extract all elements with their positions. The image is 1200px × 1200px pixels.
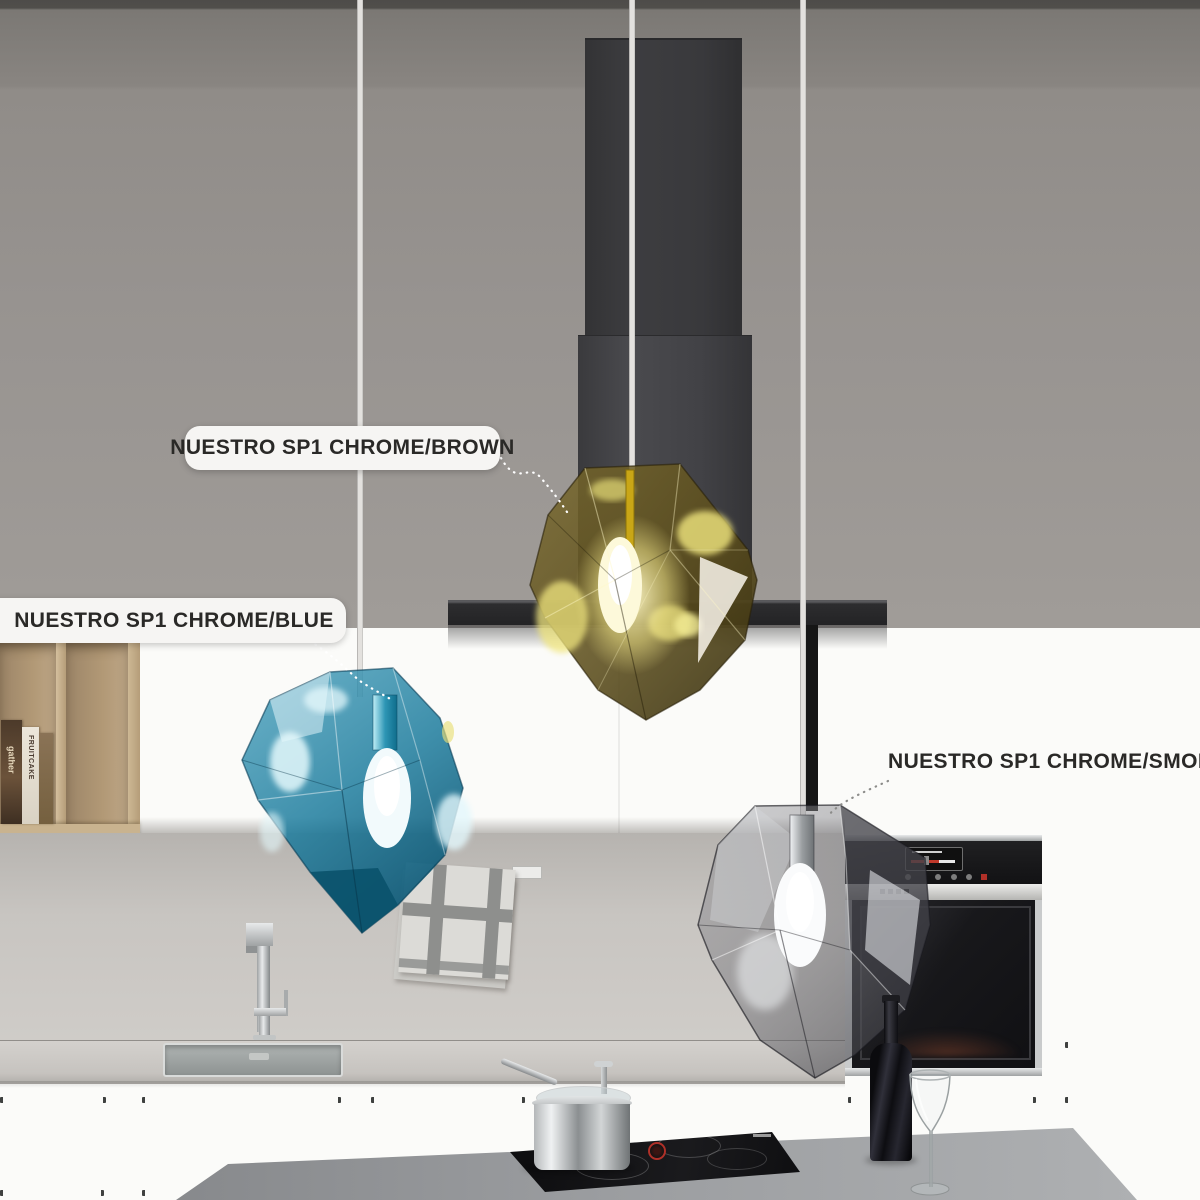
- cooktop-ring: [707, 1148, 767, 1170]
- book-gather-title: gather: [7, 746, 17, 774]
- pendant-blue-stem: [373, 695, 397, 750]
- drawer-handle[interactable]: [0, 1190, 104, 1196]
- pot: [495, 1058, 640, 1178]
- bulb-hotspot: [786, 872, 814, 932]
- bulb-hotspot: [374, 756, 400, 816]
- pendant-brown-stem: [626, 470, 634, 548]
- faucet-base: [259, 1016, 270, 1036]
- shelf-divider: [56, 642, 66, 824]
- book-gather: gather: [1, 720, 22, 824]
- oven-button-stop[interactable]: [981, 874, 987, 880]
- product-tag-blue-text: NUESTRO SP1 CHROME/BLUE: [14, 609, 334, 633]
- wine-glass-bowl: [910, 1075, 950, 1187]
- pendant-brown: [520, 455, 765, 745]
- glass-glow-spot: [677, 511, 733, 555]
- glass-glow-spot: [270, 732, 310, 792]
- faucet-tee: [254, 1008, 286, 1016]
- cooktop-controls[interactable]: [753, 1134, 771, 1137]
- product-tag-smoke-text: NUESTRO SP1 CHROME/SMOKE: [888, 750, 1200, 773]
- drawer-handle[interactable]: [142, 1097, 341, 1103]
- towel-rail: [512, 866, 542, 879]
- shelf-cavity-right: [66, 642, 128, 824]
- product-tag-smoke[interactable]: NUESTRO SP1 CHROME/SMOKE: [888, 750, 1200, 774]
- pendant-rod-black: [805, 625, 818, 811]
- product-tag-brown-text: NUESTRO SP1 CHROME/BROWN: [170, 436, 514, 460]
- book-fruitcake: FRUITCAKE: [22, 727, 39, 824]
- pot-lid-pin-cap: [594, 1061, 613, 1067]
- product-tag-brown[interactable]: NUESTRO SP1 CHROME/BROWN: [185, 426, 500, 470]
- drawer-handle[interactable]: [1065, 1042, 1200, 1048]
- cord-smoke-pendant: [800, 0, 806, 815]
- sink-drain: [249, 1053, 269, 1060]
- cord-brown-pendant: [629, 0, 635, 470]
- oven-button-timer[interactable]: [966, 874, 972, 880]
- product-tag-blue[interactable]: NUESTRO SP1 CHROME/BLUE: [0, 598, 346, 643]
- pot-handle[interactable]: [500, 1058, 558, 1086]
- book-fruitcake-title: FRUITCAKE: [27, 735, 34, 780]
- wine-glass[interactable]: [900, 1065, 962, 1200]
- cord-blue-pendant: [357, 0, 363, 697]
- glass-glow-spot: [260, 812, 284, 852]
- pot-body: [534, 1104, 630, 1170]
- kitchen-scene: gather FRUITCAKE: [0, 0, 1200, 1200]
- hood-chimney-upper: [585, 38, 742, 338]
- faucet-spout: [246, 946, 257, 953]
- bulb-hotspot: [608, 545, 632, 605]
- bottle-neck: [884, 1001, 898, 1047]
- glass-glow-spot: [304, 687, 348, 713]
- shelf-stile: [128, 628, 140, 838]
- glass-glow-spot: [442, 721, 454, 743]
- wood-shelf: gather FRUITCAKE: [0, 628, 140, 838]
- book-third: [39, 733, 53, 824]
- pendant-blue: [230, 640, 475, 940]
- sink: [163, 1043, 343, 1077]
- cooktop-knob[interactable]: [648, 1142, 666, 1160]
- drawer-handle[interactable]: [0, 1097, 106, 1103]
- faucet-plate: [253, 1035, 276, 1040]
- drawer-handle[interactable]: [1065, 1097, 1200, 1103]
